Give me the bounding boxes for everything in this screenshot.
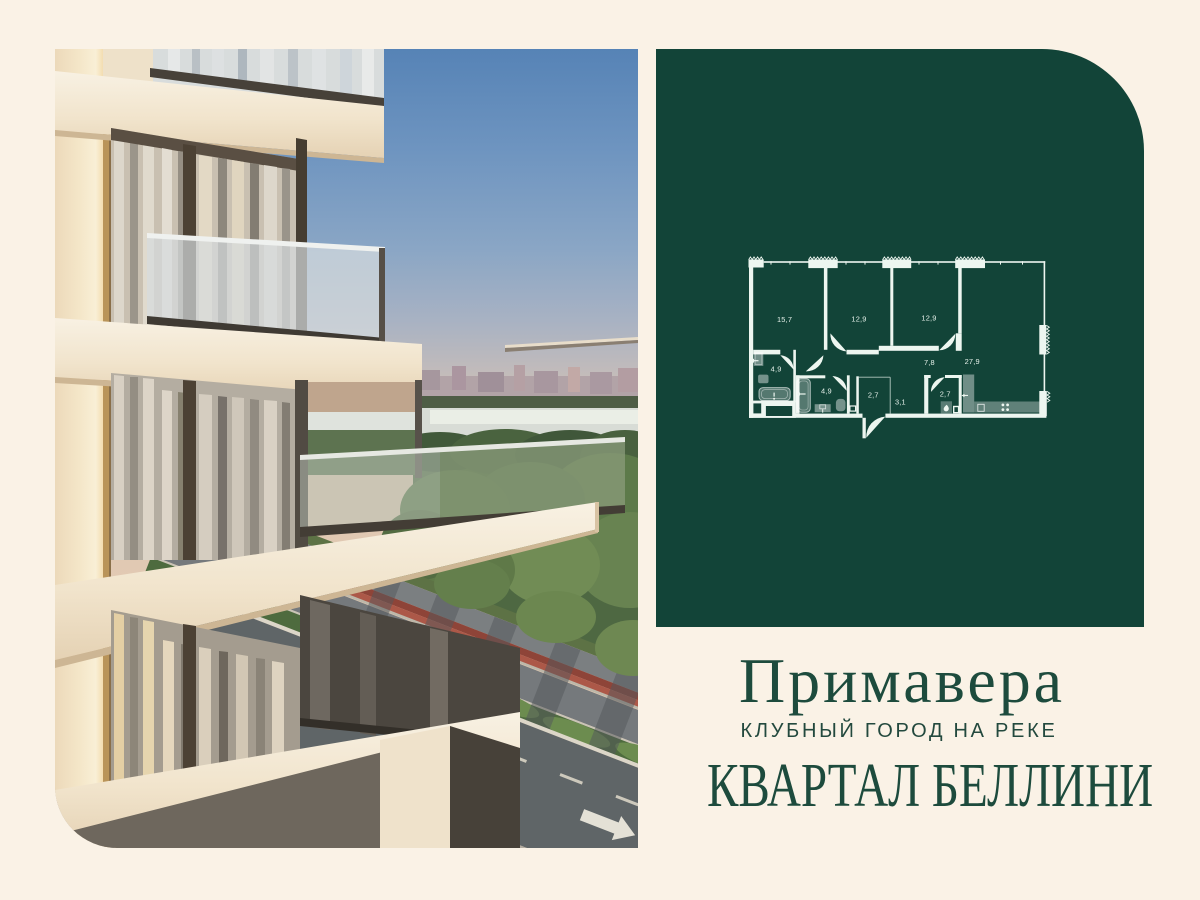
svg-text:12,9: 12,9 bbox=[851, 314, 866, 323]
svg-text:4,9: 4,9 bbox=[771, 365, 782, 374]
svg-text:7,8: 7,8 bbox=[924, 358, 935, 367]
svg-text:27,9: 27,9 bbox=[965, 357, 980, 366]
svg-text:2,7: 2,7 bbox=[868, 391, 879, 400]
svg-text:4,9: 4,9 bbox=[821, 387, 832, 396]
svg-text:12,9: 12,9 bbox=[921, 314, 936, 323]
svg-text:15,7: 15,7 bbox=[777, 315, 792, 324]
svg-text:3,1: 3,1 bbox=[895, 397, 906, 406]
svg-text:2,7: 2,7 bbox=[940, 389, 951, 398]
